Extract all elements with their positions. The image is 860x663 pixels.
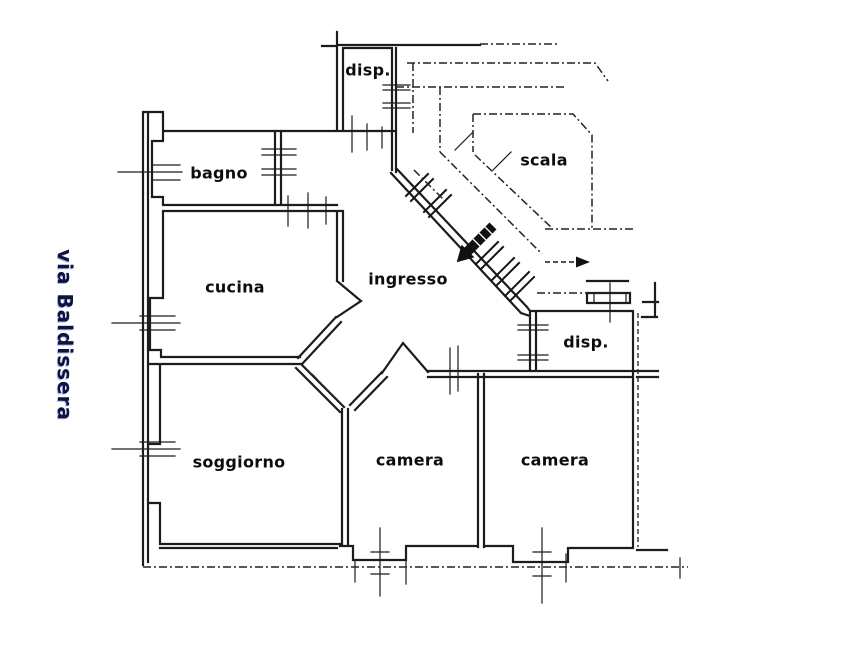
floor-plan-drawing — [0, 0, 860, 663]
room-label-disp-right: disp. — [563, 333, 609, 352]
room-label-ingresso: ingresso — [368, 270, 448, 289]
room-label-camera-2: camera — [521, 451, 589, 470]
room-label-bagno: bagno — [190, 164, 248, 183]
scala-dashed-outline — [143, 44, 688, 567]
floor-plan: disp. bagno scala cucina ingresso disp. … — [0, 0, 860, 663]
room-label-scala: scala — [520, 151, 568, 170]
stairs-direction-arrow-icon — [457, 223, 497, 263]
stairs-up-arrow-icon — [545, 257, 590, 268]
walls-main — [143, 32, 667, 565]
room-label-cucina: cucina — [205, 278, 265, 297]
street-label: via Baldissera — [53, 249, 77, 421]
room-label-camera-1: camera — [376, 451, 444, 470]
room-label-soggiorno: soggiorno — [193, 453, 286, 472]
room-label-disp-top: disp. — [345, 61, 391, 80]
